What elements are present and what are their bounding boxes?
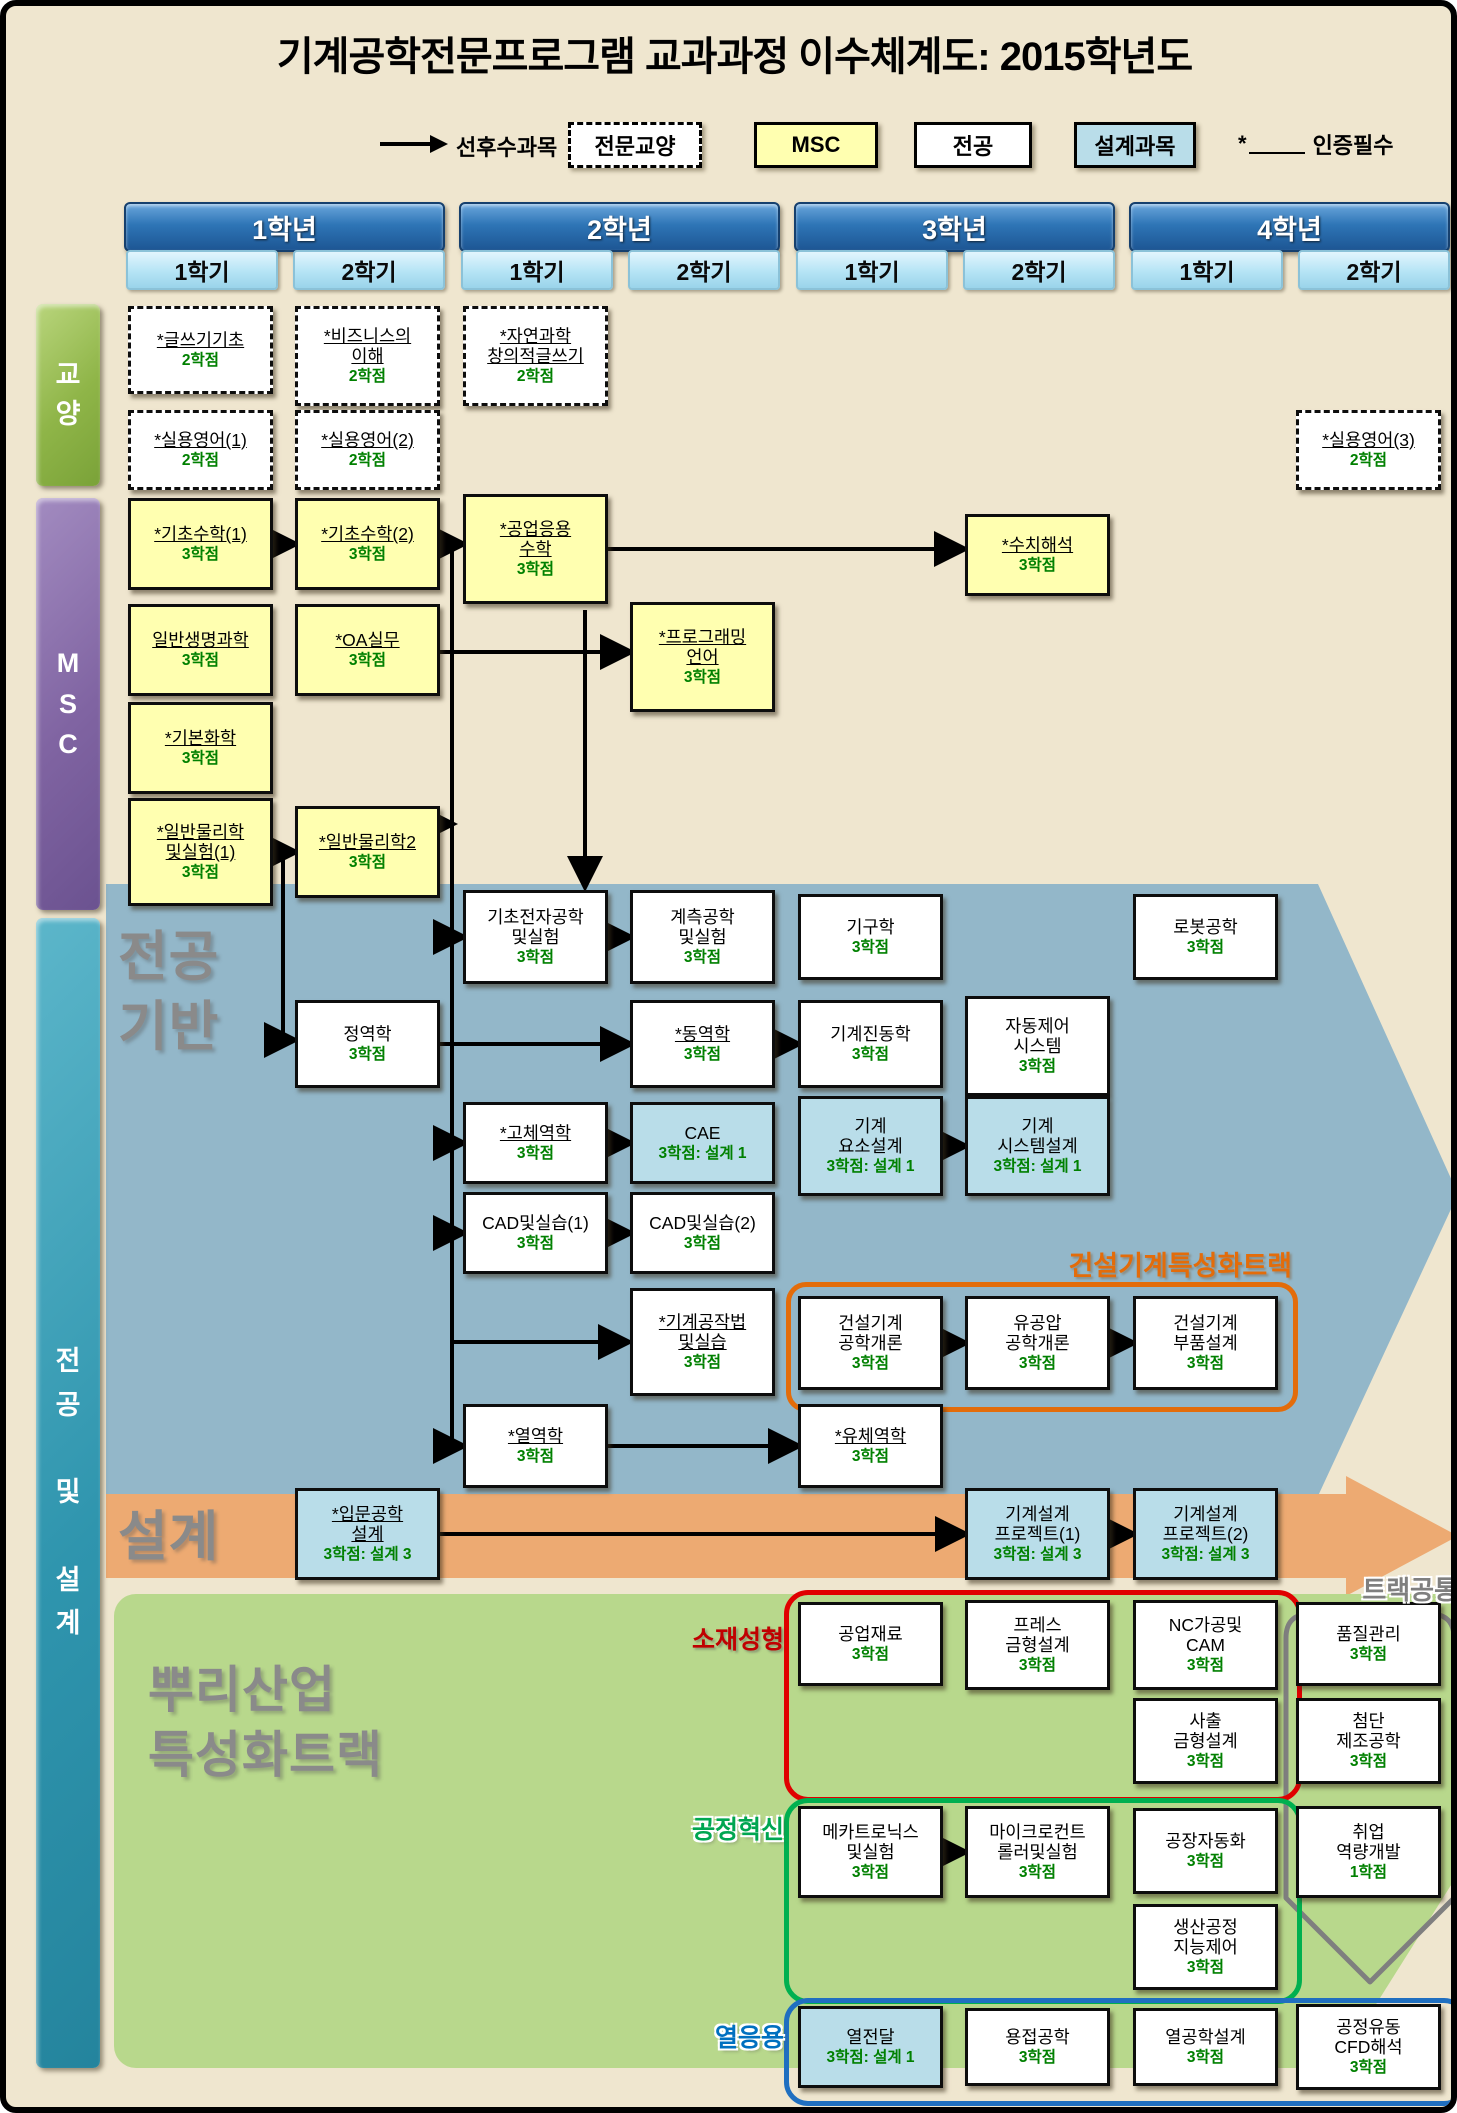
course-box-48: 취업 역량개발1학점 [1296,1806,1441,1898]
course-box-34: *열역학3학점 [463,1404,608,1488]
course-box-18: 기구학3학점 [798,894,943,980]
course-credit: 3학점 [852,1045,889,1064]
course-box-47: 공장자동화3학점 [1133,1808,1278,1894]
course-box-51: 용접공학3학점 [965,2008,1110,2086]
course-credit: 3학점 [182,749,219,768]
course-title: *고체역학 [500,1123,571,1144]
course-credit: 3학점 [684,948,721,967]
course-box-38: 기계설계 프로젝트(2)3학점: 설계 3 [1133,1488,1278,1580]
course-box-4: *실용영어(2)2학점 [295,410,440,490]
course-credit: 3학점 [684,668,721,687]
course-title: NC가공및 CAM [1169,1615,1243,1656]
course-box-26: 기계 요소설계3학점: 설계 1 [798,1096,943,1196]
course-title: 기계 요소설계 [838,1116,902,1157]
course-credit: 3학점 [182,863,219,882]
course-box-15: *일반물리학23학점 [295,806,440,898]
course-title: *비즈니스의 이해 [324,326,411,367]
course-title: *기초수학(1) [154,524,247,545]
course-credit: 3학점 [517,560,554,579]
course-credit: 3학점 [349,1045,386,1064]
course-box-27: 기계 시스템설계3학점: 설계 1 [965,1096,1110,1196]
course-box-49: 생산공정 지능제어3학점 [1133,1904,1278,1990]
course-box-53: 공정유동 CFD해석3학점 [1296,2004,1441,2090]
course-title: *기계공작법 및실습 [659,1312,746,1353]
course-title: 건설기계 부품설계 [1173,1313,1237,1354]
course-title: *프로그래밍 언어 [659,627,746,668]
course-box-6: *기초수학(1)3학점 [128,498,273,590]
course-box-10: 일반생명과학3학점 [128,604,273,696]
course-title: 공업재료 [838,1624,902,1645]
course-box-44: 첨단 제조공학3학점 [1296,1698,1441,1784]
course-credit: 3학점 [1019,1863,1056,1882]
course-box-37: 기계설계 프로젝트(1)3학점: 설계 3 [965,1488,1110,1580]
course-box-29: CAD및실습(2)3학점 [630,1192,775,1274]
course-title: *열역학 [508,1426,563,1447]
course-credit: 2학점 [1350,451,1387,470]
course-credit: 3학점 [852,938,889,957]
course-box-52: 열공학설계3학점 [1133,2008,1278,2086]
thermal-application-label: 열응용 [664,2018,784,2054]
course-credit: 3학점 [517,1234,554,1253]
course-credit: 3학점: 설계 3 [323,1545,411,1564]
course-box-13: *기본화학3학점 [128,702,273,794]
course-box-3: *실용영어(1)2학점 [128,410,273,490]
course-credit: 3학점 [1350,2058,1387,2077]
course-box-46: 마이크로컨트 롤러및실험3학점 [965,1806,1110,1898]
course-credit: 3학점 [1187,1752,1224,1771]
course-credit: 3학점 [349,651,386,670]
course-box-45: 메카트로닉스 및실험3학점 [798,1806,943,1898]
course-credit: 3학점: 설계 3 [1161,1545,1249,1564]
course-box-39: 공업재료3학점 [798,1602,943,1686]
course-title: 마이크로컨트 롤러및실험 [989,1822,1086,1863]
course-title: *동역학 [675,1024,730,1045]
course-box-24: *고체역학3학점 [463,1102,608,1184]
course-title: 정역학 [343,1024,391,1045]
course-credit: 3학점 [1019,2048,1056,2067]
course-credit: 3학점 [852,1354,889,1373]
course-title: 첨단 제조공학 [1336,1711,1400,1752]
course-title: 기구학 [846,917,894,938]
curriculum-flowchart: 기계공학전문프로그램 교과과정 이수체계도: 2015학년도 선후수과목 전문교… [0,0,1457,2113]
course-credit: 3학점 [1187,2048,1224,2067]
course-title: *유체역학 [835,1426,906,1447]
course-credit: 3학점 [1350,1752,1387,1771]
course-credit: 2학점 [349,367,386,386]
course-credit: 2학점 [182,351,219,370]
course-box-41: NC가공및 CAM3학점 [1133,1600,1278,1690]
course-credit: 3학점 [684,1353,721,1372]
course-title: 생산공정 지능제어 [1173,1917,1237,1958]
course-title: 자동제어 시스템 [1005,1016,1069,1057]
course-box-25: CAE3학점: 설계 1 [630,1102,775,1184]
course-box-35: *유체역학3학점 [798,1404,943,1488]
course-box-12: *프로그래밍 언어3학점 [630,602,775,712]
course-title: 프레스 금형설계 [1005,1615,1069,1656]
course-title: *수치해석 [1002,535,1073,556]
course-title: *입문공학 설계 [332,1504,403,1545]
course-box-31: 건설기계 공학개론3학점 [798,1296,943,1390]
course-box-9: *수치해석3학점 [965,514,1110,596]
course-box-0: *글쓰기기초2학점 [128,306,273,394]
course-box-40: 프레스 금형설계3학점 [965,1600,1110,1690]
course-title: *일반물리학 및실험(1) [157,822,244,863]
course-title: *OA실무 [335,630,399,651]
course-title: 사출 금형설계 [1173,1711,1237,1752]
course-box-33: 건설기계 부품설계3학점 [1133,1296,1278,1390]
course-credit: 3학점: 설계 1 [826,2048,914,2067]
course-box-32: 유공압 공학개론3학점 [965,1296,1110,1390]
course-credit: 3학점: 설계 1 [658,1144,746,1163]
course-box-23: 자동제어 시스템3학점 [965,996,1110,1096]
course-title: *실용영어(3) [1322,430,1415,451]
course-box-30: *기계공작법 및실습3학점 [630,1288,775,1396]
course-box-28: CAD및실습(1)3학점 [463,1192,608,1274]
course-credit: 3학점 [349,545,386,564]
course-credit: 3학점 [1019,1354,1056,1373]
course-credit: 3학점 [852,1447,889,1466]
course-title: 기계설계 프로젝트(1) [995,1504,1081,1545]
course-box-21: *동역학3학점 [630,1000,775,1088]
course-credit: 3학점 [684,1234,721,1253]
course-box-14: *일반물리학 및실험(1)3학점 [128,798,273,906]
course-credit: 3학점 [517,1447,554,1466]
course-credit: 3학점 [349,853,386,872]
track-common-label: 트랙공통 [1334,1570,1457,1607]
course-title: 기초전자공학 및실험 [487,907,584,948]
course-credit: 3학점: 설계 3 [993,1545,1081,1564]
course-credit: 3학점 [1019,1057,1056,1076]
course-box-43: 사출 금형설계3학점 [1133,1698,1278,1784]
course-credit: 3학점 [1019,556,1056,575]
course-title: *기본화학 [165,728,236,749]
course-title: 용접공학 [1005,2027,1069,2048]
course-credit: 3학점: 설계 1 [826,1157,914,1176]
course-credit: 3학점 [1019,1656,1056,1675]
course-credit: 3학점 [1350,1645,1387,1664]
course-box-5: *실용영어(3)2학점 [1296,410,1441,490]
course-box-20: 정역학3학점 [295,1000,440,1088]
course-credit: 3학점 [517,948,554,967]
course-box-50: 열전달3학점: 설계 1 [798,2006,943,2088]
course-title: 메카트로닉스 및실험 [822,1822,919,1863]
course-title: 로봇공학 [1173,917,1237,938]
course-title: 유공압 공학개론 [1005,1313,1069,1354]
course-credit: 3학점 [852,1645,889,1664]
course-title: *글쓰기기초 [157,330,244,351]
course-credit: 3학점 [182,545,219,564]
course-title: *실용영어(2) [321,430,414,451]
course-box-8: *공업응용 수학3학점 [463,494,608,604]
process-innovation-label: 공정혁신 [634,1810,784,1846]
course-credit: 3학점 [1187,938,1224,957]
course-title: 공장자동화 [1165,1831,1246,1852]
course-credit: 2학점 [182,451,219,470]
course-title: CAD및실습(2) [649,1213,756,1234]
course-credit: 3학점 [517,1144,554,1163]
course-title: *자연과학 창의적글쓰기 [487,326,584,367]
course-box-36: *입문공학 설계3학점: 설계 3 [295,1488,440,1580]
course-credit: 3학점 [1187,1656,1224,1675]
course-title: 취업 역량개발 [1336,1822,1400,1863]
course-title: 기계진동학 [830,1024,911,1045]
course-box-42: 품질관리3학점 [1296,1602,1441,1686]
course-title: CAD및실습(1) [482,1213,589,1234]
course-box-17: 계측공학 및실험3학점 [630,890,775,984]
course-credit: 2학점 [349,451,386,470]
course-title: 열공학설계 [1165,2027,1246,2048]
course-credit: 3학점 [1187,1958,1224,1977]
course-title: *공업응용 수학 [500,519,571,560]
course-box-11: *OA실무3학점 [295,604,440,696]
course-title: 건설기계 공학개론 [838,1313,902,1354]
course-box-1: *비즈니스의 이해2학점 [295,306,440,406]
course-credit: 3학점 [852,1863,889,1882]
construction-track-label: 건설기계특성화트랙 [956,1244,1292,1283]
course-title: 품질관리 [1336,1624,1400,1645]
course-title: 기계 시스템설계 [997,1116,1078,1157]
course-credit: 1학점 [1350,1863,1387,1882]
course-title: *기초수학(2) [321,524,414,545]
course-box-2: *자연과학 창의적글쓰기2학점 [463,306,608,406]
course-title: 기계설계 프로젝트(2) [1163,1504,1249,1545]
course-box-7: *기초수학(2)3학점 [295,498,440,590]
course-box-16: 기초전자공학 및실험3학점 [463,890,608,984]
course-title: *일반물리학2 [319,832,416,853]
course-title: 계측공학 및실험 [670,907,734,948]
course-box-19: 로봇공학3학점 [1133,894,1278,980]
course-credit: 3학점 [182,651,219,670]
course-title: *실용영어(1) [154,430,247,451]
course-title: 공정유동 CFD해석 [1334,2017,1402,2058]
course-title: 일반생명과학 [152,630,249,651]
course-title: 열전달 [846,2027,894,2048]
course-credit: 3학점 [1187,1852,1224,1871]
course-credit: 3학점 [684,1045,721,1064]
course-credit: 3학점: 설계 1 [993,1157,1081,1176]
course-credit: 2학점 [517,367,554,386]
course-box-22: 기계진동학3학점 [798,1000,943,1088]
material-forming-label: 소재성형 [634,1620,784,1656]
course-credit: 3학점 [1187,1354,1224,1373]
course-title: CAE [685,1123,721,1144]
